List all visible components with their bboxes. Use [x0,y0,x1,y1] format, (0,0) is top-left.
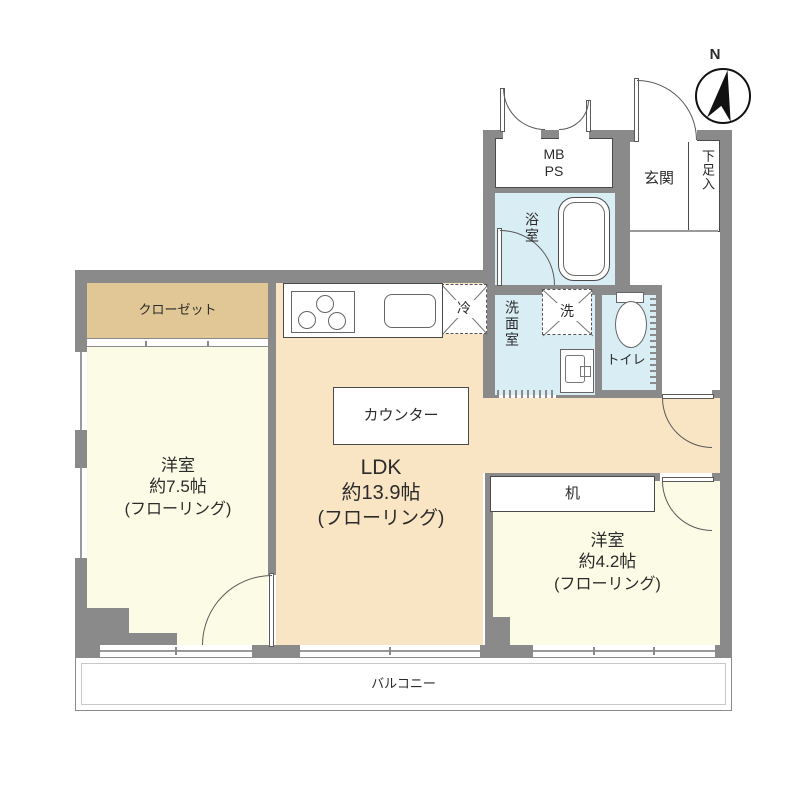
wall-top-left [75,270,495,283]
kitchen-sink [384,294,436,328]
bathroom-label: 浴室 [522,212,542,244]
kitchen-counter [283,283,443,338]
window-bottom-right-room [533,645,715,657]
mbps-door-arc-right [559,100,589,130]
balcony-label: バルコニー [76,676,731,692]
wall-leftroom-ldk [268,283,276,575]
desk-label: 机 [565,485,580,504]
ldk-label: LDK 約13.9帖 (フローリング) [286,455,476,531]
mbps-opening-left [503,130,541,142]
wall-pier-leftroom [87,608,129,645]
shoe-box: 下足入 [688,140,720,232]
entrance-label: 玄関 [630,170,688,189]
stove [291,291,355,333]
wall-left [75,270,87,657]
washroom-door [497,390,556,398]
closet-sliding-door [87,338,268,347]
balcony: バルコニー [75,657,732,711]
western-room-right-label: 洋室 約4.2帖 (フローリング) [500,530,715,595]
wall-pier-rightroom [485,617,510,645]
counter-box: カウンター [333,387,469,445]
washer-space: 洗 [542,289,592,335]
closet-label: クローゼット [87,302,268,318]
mbps-opening-right [559,130,589,142]
desk-box: 机 [490,476,655,512]
wall-pier-leftroom-step [129,633,177,645]
wall-washroom-toilet [595,295,602,395]
mbps-door-arc-left [503,88,545,130]
western-room-left-label: 洋室 約7.5帖 (フローリング) [92,455,264,520]
washer-label: 洗 [555,303,579,321]
bathtub [558,197,610,281]
fridge-label: 冷 [452,300,476,318]
compass-north-label: N [700,46,730,65]
window-left-2 [75,468,87,558]
floor-plan: MBPS 洗 冷 [0,0,800,800]
window-bottom-left-room [100,645,252,657]
toilet-door [650,298,657,384]
shoe-box-label: 下足入 [698,149,717,191]
compass-needle [693,66,753,126]
window-left-1 [75,352,87,430]
meter-box-label: MBPS [544,146,565,181]
entrance-step-line [630,230,718,232]
window-bottom-ldk [300,645,480,657]
toilet-bowl [615,301,647,348]
washbasin [560,349,594,393]
entrance-door-arc [637,80,697,140]
wall-rightroom-top-stub [712,473,732,481]
meter-box: MBPS [495,138,613,188]
washroom-label: 洗面室 [502,300,522,348]
toilet-label: トイレ [600,352,652,368]
counter-label: カウンター [363,407,438,426]
fridge-space: 冷 [441,284,487,334]
